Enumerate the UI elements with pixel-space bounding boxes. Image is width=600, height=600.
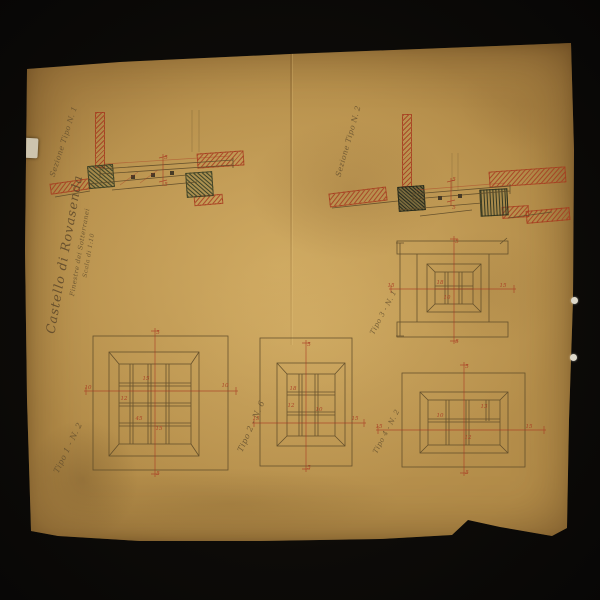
dimension-value: 12	[465, 435, 472, 441]
dimension-value: 45	[135, 416, 143, 422]
section-2-red-marks	[416, 178, 505, 206]
ink-linework: 5 5 5 5 5 10 10 15 12 45 15 5 5 15 15 18…	[0, 0, 600, 600]
dimension-value: 5	[156, 471, 160, 477]
photo-stage: 5 5 5 5 5 10 10 15 12 45 15 5 5 15 15 18…	[0, 0, 600, 600]
plan-1-red-centerlines	[84, 328, 238, 477]
dimension-value: 10	[437, 413, 444, 419]
dimension-value: 12	[288, 403, 295, 409]
dimension-value: 15	[500, 283, 507, 289]
edge-label-sticker	[21, 138, 38, 159]
dimension-value: 12	[121, 396, 128, 402]
dimension-value: 5	[465, 364, 469, 370]
dimension-value: 5	[164, 155, 168, 161]
dimension-value: 10	[222, 383, 229, 389]
dimension-value: 5	[465, 470, 469, 476]
dimension-value: 5	[455, 339, 459, 345]
plan-4-linework	[402, 373, 525, 467]
dimension-value: 18	[437, 280, 444, 286]
section-2-linework	[332, 153, 552, 218]
dimension-value: 15	[352, 416, 359, 422]
plan-3-red-centerlines	[389, 236, 516, 344]
punch-hole-top	[571, 297, 578, 304]
dimension-value: 10	[85, 385, 92, 391]
drawing-sheet: 5 5 5 5 5 10 10 15 12 45 15 5 5 15 15 18…	[0, 0, 600, 600]
dimension-value: 5	[455, 239, 459, 245]
dimension-value: 15	[156, 426, 163, 432]
plan-1-linework	[93, 336, 228, 470]
dimension-value: 10	[316, 407, 323, 413]
punch-hole-bottom	[570, 354, 577, 361]
dimension-value: 13	[481, 404, 488, 410]
dimension-value: 15	[526, 424, 533, 430]
dimension-value: 5	[156, 330, 160, 336]
plan-2-red-centerlines	[252, 340, 366, 472]
dimension-value: 5	[452, 205, 456, 211]
plan-3-linework	[396, 238, 508, 337]
dimension-value: 5	[307, 342, 311, 348]
dimension-value: 5	[164, 182, 168, 188]
dimension-value: 18	[290, 386, 297, 392]
dimension-value: 10	[444, 295, 451, 301]
dimension-value: 15	[143, 376, 150, 382]
dimension-value: 5	[307, 465, 311, 471]
dimension-value: 5	[452, 177, 456, 183]
